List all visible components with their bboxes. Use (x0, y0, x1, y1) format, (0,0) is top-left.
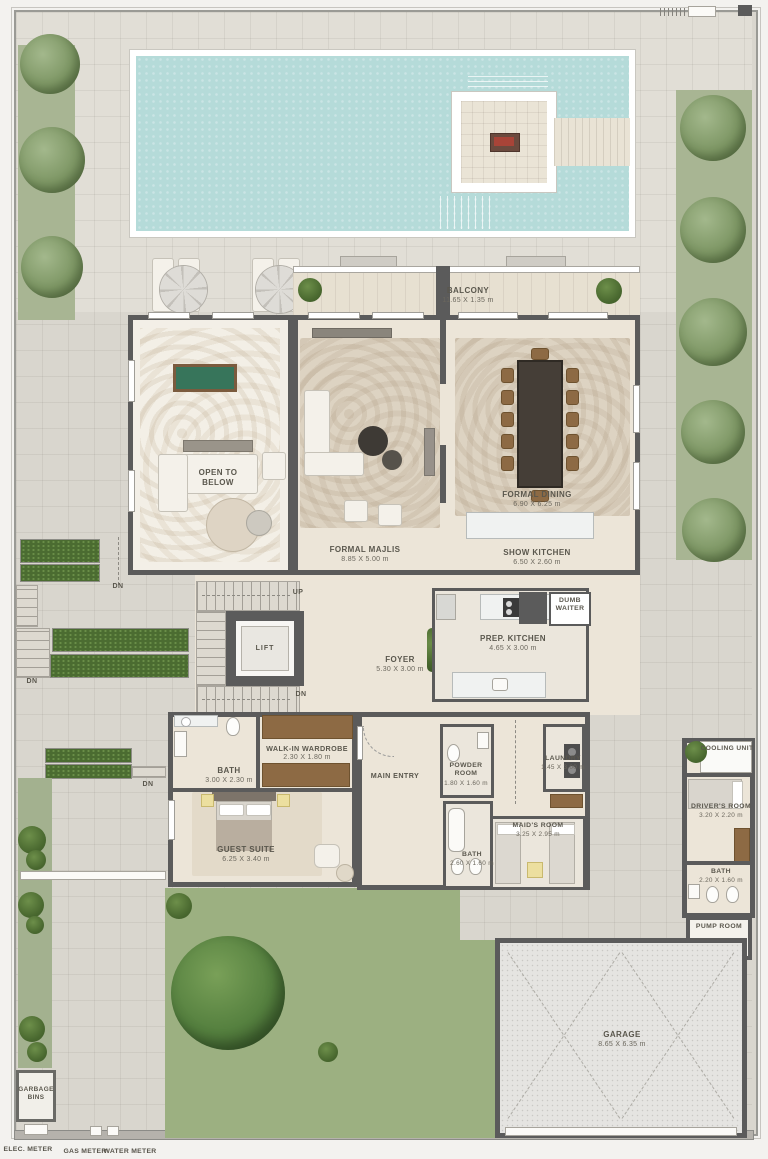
room-name: BALCONY (408, 286, 528, 296)
room-dim: 8.65 X 6.35 m (562, 1041, 682, 1050)
room-name: GARBAGE BINS (17, 1086, 55, 1102)
show-kitchen-label: SHOW KITCHEN 6.50 X 2.60 m (477, 548, 597, 568)
armchair (378, 504, 402, 526)
wall-stub (440, 445, 446, 503)
armchair (314, 844, 340, 868)
stairs-up-label: UP (283, 589, 313, 596)
boundary-panel (688, 6, 716, 17)
guest-suite-label: GUEST SUITE 6.25 X 3.40 m (186, 845, 306, 865)
room-name: LAUNDRY (534, 755, 592, 763)
stairs-up (196, 581, 300, 611)
guest-bath-label: BATH 3.00 X 2.30 m (189, 766, 269, 786)
armchair (262, 452, 286, 480)
dining-chair (566, 434, 579, 449)
dining-chair (566, 456, 579, 471)
outdoor-stairs (132, 766, 166, 778)
toilet (447, 744, 460, 762)
room-dim: 2.60 X 1.60 m (443, 860, 501, 868)
hedge-planter (45, 764, 132, 779)
garage-label: GARAGE 8.65 X 6.35 m (562, 1030, 682, 1050)
pump-room-label: PUMP ROOM (692, 923, 746, 931)
room-dim: 1.45 X 3.00 m (534, 764, 592, 772)
dining-chair (501, 434, 514, 449)
toilet (706, 886, 719, 903)
shower (174, 731, 187, 757)
boundary-hatch (660, 8, 686, 16)
room-dim: 2.20 X 1.60 m (690, 877, 752, 885)
large-tree-icon (171, 936, 285, 1050)
tree-icon (680, 197, 746, 263)
maids-room-label: MAID'S ROOM 3.25 X 2.95 m (507, 822, 569, 839)
window (308, 312, 360, 319)
elec-meter-label: ELEC. METER (2, 1146, 54, 1153)
formal-dining-label: FORMAL DINING 6.90 X 6.25 m (477, 490, 597, 510)
side-gate (20, 871, 166, 880)
wing-wall (685, 773, 752, 777)
room-dim: 1.80 X 1.60 m (440, 780, 492, 788)
dining-chair (531, 348, 549, 360)
shrub-icon (166, 893, 192, 919)
nightstand (201, 794, 214, 807)
window (548, 312, 608, 319)
tree-icon (679, 298, 747, 366)
planter-icon (596, 278, 622, 304)
room-name: DUMB WAITER (548, 597, 592, 614)
shrub-icon (26, 916, 44, 934)
room-dim: 3.20 X 2.20 m (690, 812, 752, 820)
window (372, 312, 424, 319)
tree-icon (21, 236, 83, 298)
wardrobe-cabinet (262, 763, 350, 787)
window (128, 360, 135, 402)
room-name: FORMAL MAJLIS (305, 545, 425, 555)
nightstand (527, 862, 543, 878)
kitchen-island (466, 512, 594, 539)
pillow (246, 804, 271, 816)
umbrella-icon (160, 266, 207, 313)
bed-headboard (212, 792, 276, 801)
pool-bridge (554, 118, 630, 166)
window (212, 312, 254, 319)
room-name: DRIVER'S ROOM (690, 803, 752, 811)
tree-icon (680, 95, 746, 161)
lift-label: LIFT (256, 645, 275, 652)
sofa (304, 390, 330, 454)
dining-chair (501, 390, 514, 405)
room-dim: 11.65 X 1.35 m (408, 297, 528, 306)
pillow (219, 804, 244, 816)
burner (506, 601, 512, 607)
stairs-down (196, 686, 300, 714)
bathtub (448, 808, 465, 852)
room-dim: 5.30 X 3.00 m (360, 666, 440, 675)
balcony-railing (293, 266, 640, 273)
stair-centerline (202, 595, 290, 596)
armchair (344, 500, 368, 522)
laundry-label: LAUNDRY 1.45 X 3.00 m (534, 755, 592, 772)
pool-steps-bottom (440, 196, 490, 229)
hedge-planter (20, 564, 100, 582)
prep-kitchen-label: PREP. KITCHEN 4.65 X 3.00 m (453, 634, 573, 654)
shrub-icon (27, 1042, 47, 1062)
outdoor-stairs (16, 628, 50, 678)
billiard-table (173, 364, 237, 392)
console-table (183, 440, 253, 452)
burner (506, 609, 512, 615)
room-dim: 3.00 X 2.30 m (189, 777, 269, 786)
tree-icon (682, 498, 746, 562)
window (633, 462, 640, 510)
dining-chair (566, 390, 579, 405)
dumb-waiter-label: DUMB WAITER (548, 597, 592, 614)
planter-icon (298, 278, 322, 302)
drivers-room-label: DRIVER'S ROOM 3.20 X 2.20 m (690, 803, 752, 820)
room-dim: 6.50 X 2.60 m (477, 559, 597, 568)
wall-stub (440, 318, 446, 384)
bidet (726, 886, 739, 903)
room-name: COOLING UNIT (699, 745, 755, 753)
room-name: MAID'S ROOM (507, 822, 569, 830)
room-name: WALK-IN WARDROBE (251, 744, 363, 753)
drivers-bath-label: BATH 2.20 X 1.60 m (690, 868, 752, 885)
main-entry-label: MAIN ENTRY (355, 771, 435, 780)
elec-meter-box (24, 1124, 48, 1135)
stair-centerline (202, 699, 290, 700)
outdoor-stairs (16, 585, 38, 627)
formal-majlis-label: FORMAL MAJLIS 8.85 X 5.00 m (305, 545, 425, 565)
dining-table (517, 360, 563, 488)
outdoor-dn-label: DN (17, 678, 47, 685)
majlis-console (312, 328, 392, 338)
room-name: PREP. KITCHEN (453, 634, 573, 644)
hedge-planter (50, 654, 189, 678)
sofa (304, 452, 364, 476)
nightstand (277, 794, 290, 807)
shrub-icon (18, 892, 44, 918)
drivers-wardrobe (734, 828, 750, 862)
balcony-label: BALCONY 11.65 X 1.35 m (408, 286, 528, 306)
room-name: GARAGE (562, 1030, 682, 1040)
shrub-icon (26, 850, 46, 870)
foyer-label: FOYER 5.30 X 3.00 m (360, 655, 440, 675)
room-name: OPEN TO BELOW (188, 468, 248, 488)
sink (492, 678, 508, 691)
corridor-line (515, 720, 516, 804)
room-name: BATH (189, 766, 269, 776)
dining-chair (566, 368, 579, 383)
room-name: BATH (690, 868, 752, 876)
dining-chair (566, 412, 579, 427)
shrub-icon (19, 1016, 45, 1042)
coffee-table (358, 426, 388, 456)
room-name: POWDER ROOM (440, 762, 492, 779)
window (458, 312, 518, 319)
pouf (246, 510, 272, 536)
room-dim: 6.25 X 3.40 m (186, 856, 306, 865)
gas-meter-box (90, 1126, 102, 1136)
pool-steps-top (468, 76, 548, 92)
pouf (336, 864, 354, 882)
dumb-waiter-shaft (519, 592, 547, 624)
garbage-bins-label: GARBAGE BINS (17, 1086, 55, 1102)
room-dim: 8.85 X 5.00 m (305, 556, 425, 565)
lift-car: LIFT (241, 626, 289, 671)
cooling-unit-label: COOLING UNIT (699, 745, 755, 753)
wardrobe-cabinet (262, 715, 353, 739)
hedge-planter (45, 748, 132, 763)
room-name: PUMP ROOM (692, 923, 746, 931)
maids-bath-label: BATH 2.60 X 1.60 m (443, 851, 501, 868)
powder-room-label: POWDER ROOM 1.80 X 1.60 m (440, 762, 492, 788)
wing-wall (685, 861, 752, 865)
window (168, 800, 175, 840)
fridge (436, 594, 456, 620)
wardrobe-label: WALK-IN WARDROBE 2.30 X 1.80 m (251, 744, 363, 763)
room-name: MAIN ENTRY (355, 771, 435, 780)
stairs-side (196, 611, 226, 686)
shrub-icon (318, 1042, 338, 1062)
room-dim: 2.30 X 1.80 m (251, 754, 363, 763)
tree-icon (20, 34, 80, 94)
sink (688, 884, 700, 899)
basin (181, 717, 191, 727)
outdoor-dn-label: DN (103, 583, 133, 590)
room-dim: 6.90 X 6.25 m (477, 501, 597, 510)
hedge-planter (20, 539, 100, 563)
tree-icon (681, 400, 745, 464)
window (633, 385, 640, 433)
dimension-line (118, 537, 119, 585)
garage-door (505, 1127, 737, 1136)
water-meter-box (107, 1126, 119, 1136)
fire-pit-coals (494, 137, 514, 146)
open-to-below-label: OPEN TO BELOW (178, 468, 258, 488)
toilet (226, 717, 240, 736)
water-meter-label: WATER METER (102, 1148, 158, 1155)
dining-chair (501, 456, 514, 471)
tree-icon (19, 127, 85, 193)
room-name: BATH (443, 851, 501, 859)
side-table (382, 450, 402, 470)
floor-plan-canvas: LIFT (0, 0, 768, 1159)
bench (424, 428, 435, 476)
room-name: FORMAL DINING (477, 490, 597, 500)
room-name: GUEST SUITE (186, 845, 306, 855)
window (148, 312, 190, 319)
room-name: SHOW KITCHEN (477, 548, 597, 558)
lawn-main-edge (460, 940, 497, 1138)
dining-chair (501, 368, 514, 383)
laundry-shelf (550, 794, 583, 808)
boundary-post (738, 5, 752, 16)
window (128, 470, 135, 512)
stairs-down-label: DN (286, 691, 316, 698)
dining-chair (501, 412, 514, 427)
room-dim: 4.65 X 3.00 m (453, 645, 573, 654)
hedge-planter (52, 628, 189, 652)
outdoor-dn-label: DN (133, 781, 163, 788)
room-name: FOYER (360, 655, 440, 665)
room-dim: 3.25 X 2.95 m (507, 831, 569, 839)
powder-sink (477, 732, 489, 749)
